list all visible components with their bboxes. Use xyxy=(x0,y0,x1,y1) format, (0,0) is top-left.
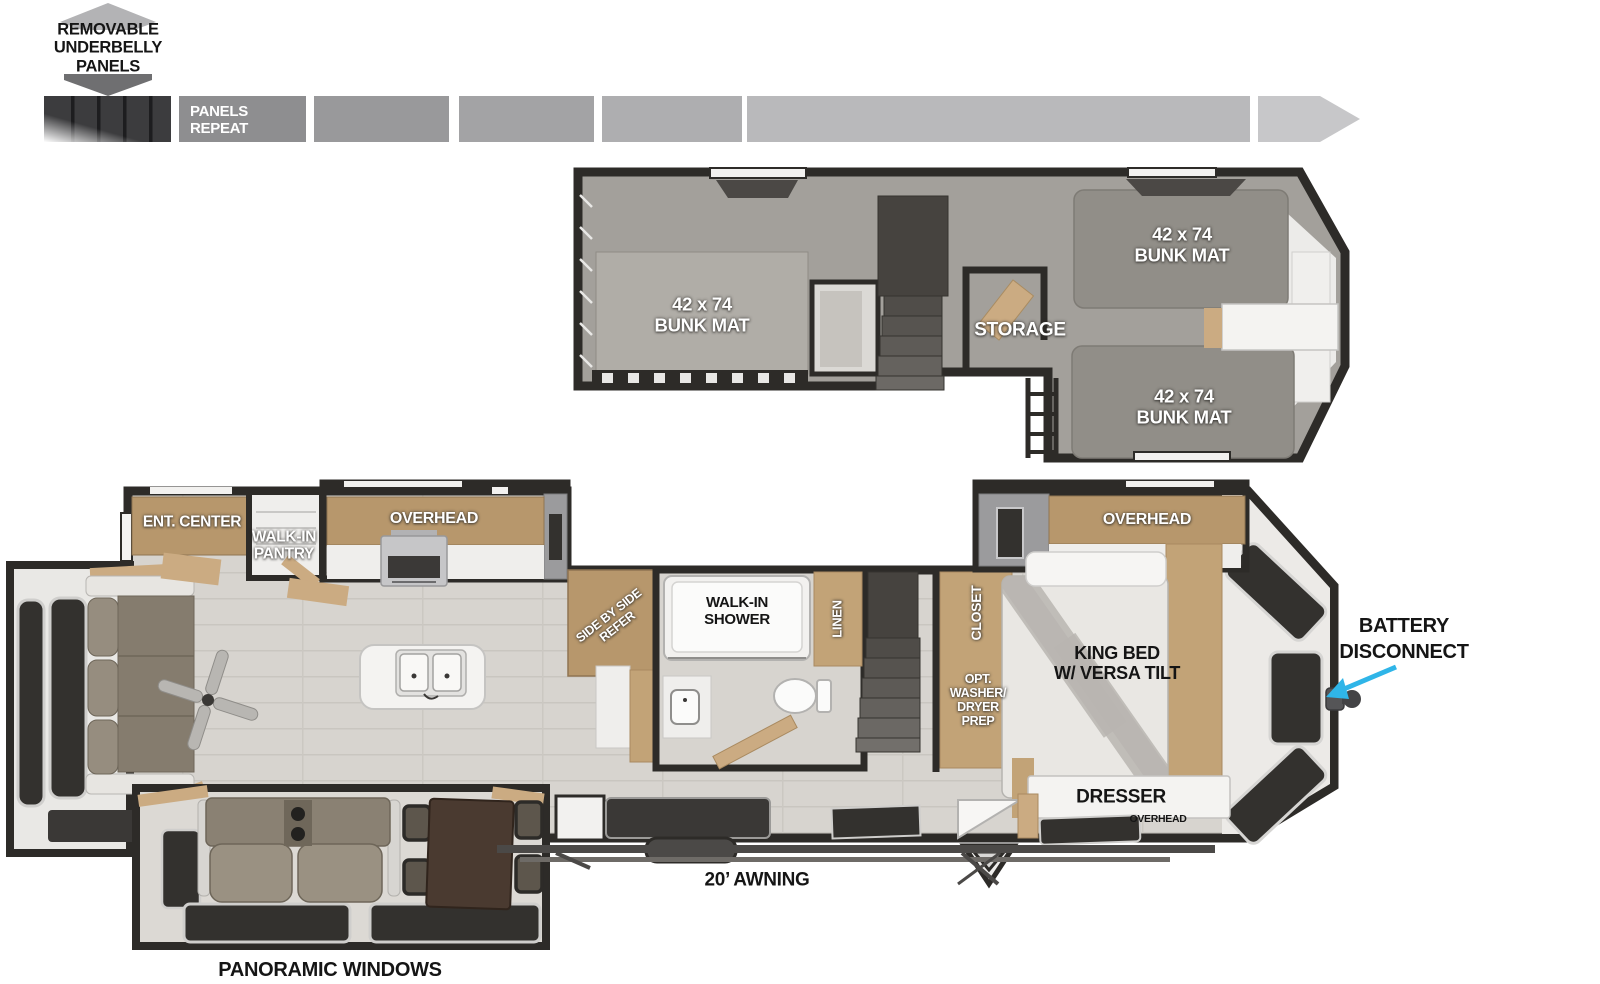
roof-vent xyxy=(1134,452,1230,461)
main-plan xyxy=(10,481,1396,946)
dresser xyxy=(1028,776,1230,818)
refrigerator xyxy=(568,570,660,676)
main-entry-door xyxy=(556,796,604,840)
floorplan-drawing xyxy=(0,0,1600,984)
linen-closet xyxy=(814,572,862,666)
loft-landing-pad xyxy=(820,291,862,367)
awning xyxy=(497,845,1215,884)
loft-bunk-top xyxy=(1074,190,1288,308)
panel-long xyxy=(747,96,1250,142)
bottom-slide-out xyxy=(136,785,546,946)
dinette-table xyxy=(426,799,514,910)
roof-vent xyxy=(710,168,806,178)
loft-rail xyxy=(592,370,808,386)
roof-vent xyxy=(1128,168,1216,177)
dinette-chair xyxy=(404,806,430,840)
panoramic-window xyxy=(370,904,540,942)
loft-wood-block xyxy=(1204,308,1222,348)
bed-platform xyxy=(1166,544,1222,778)
wall-vent xyxy=(344,481,462,487)
slide-window xyxy=(50,598,86,798)
wall-vent xyxy=(1126,481,1214,487)
range-stove xyxy=(381,530,447,586)
panel-repeat xyxy=(179,96,306,142)
pillows xyxy=(1026,552,1166,586)
cupholder xyxy=(291,827,305,841)
bottom-wall-window xyxy=(832,805,921,838)
panoramic-window xyxy=(184,904,350,942)
roof-vent-hatch xyxy=(716,180,798,198)
kitchen-slide-out xyxy=(323,481,567,586)
loft-bunk-pad-left xyxy=(596,252,808,374)
slide-window xyxy=(18,600,44,806)
ent-center-cabinet xyxy=(132,497,252,555)
panel-arrow-end xyxy=(1258,96,1360,142)
closet-washer-column xyxy=(940,572,1012,768)
underbelly-arrows xyxy=(60,3,156,96)
panel xyxy=(602,96,742,142)
loft-bunk-bottom xyxy=(1072,346,1294,458)
slide-window xyxy=(997,508,1023,558)
loft-stairs xyxy=(876,196,948,390)
toilet xyxy=(774,679,816,713)
loft-plan xyxy=(578,168,1345,461)
bedroom-window xyxy=(1040,815,1141,844)
bedroom-overhead-cabinet xyxy=(1049,496,1245,544)
slide-window xyxy=(162,830,200,908)
panel-dark-striped xyxy=(44,96,171,142)
wall-vent xyxy=(150,487,232,494)
panel xyxy=(459,96,594,142)
rear-wall-window xyxy=(121,513,132,561)
dinette-chair xyxy=(516,802,542,838)
slide-window xyxy=(549,514,562,560)
bathroom xyxy=(656,570,864,769)
arrow-up-icon xyxy=(60,3,156,30)
underbelly-panel-strip xyxy=(44,96,1360,142)
entry-mat xyxy=(606,798,770,838)
loft-nightstand xyxy=(1222,304,1338,350)
pullout-counter xyxy=(596,666,630,748)
arrow-down-icon xyxy=(64,74,152,96)
wall-vent xyxy=(492,487,508,494)
theater-seating xyxy=(198,798,400,902)
walk-in-pantry-room xyxy=(249,492,322,589)
rv-floorplan-diagram: REMOVABLE UNDERBELLY PANELS PANELS REPEA… xyxy=(0,0,1600,984)
kitchen-island xyxy=(360,645,485,709)
sofa-mat xyxy=(48,810,146,842)
roof-vent-hatch xyxy=(1126,179,1246,196)
cupholder xyxy=(291,807,305,821)
panel xyxy=(314,96,449,142)
